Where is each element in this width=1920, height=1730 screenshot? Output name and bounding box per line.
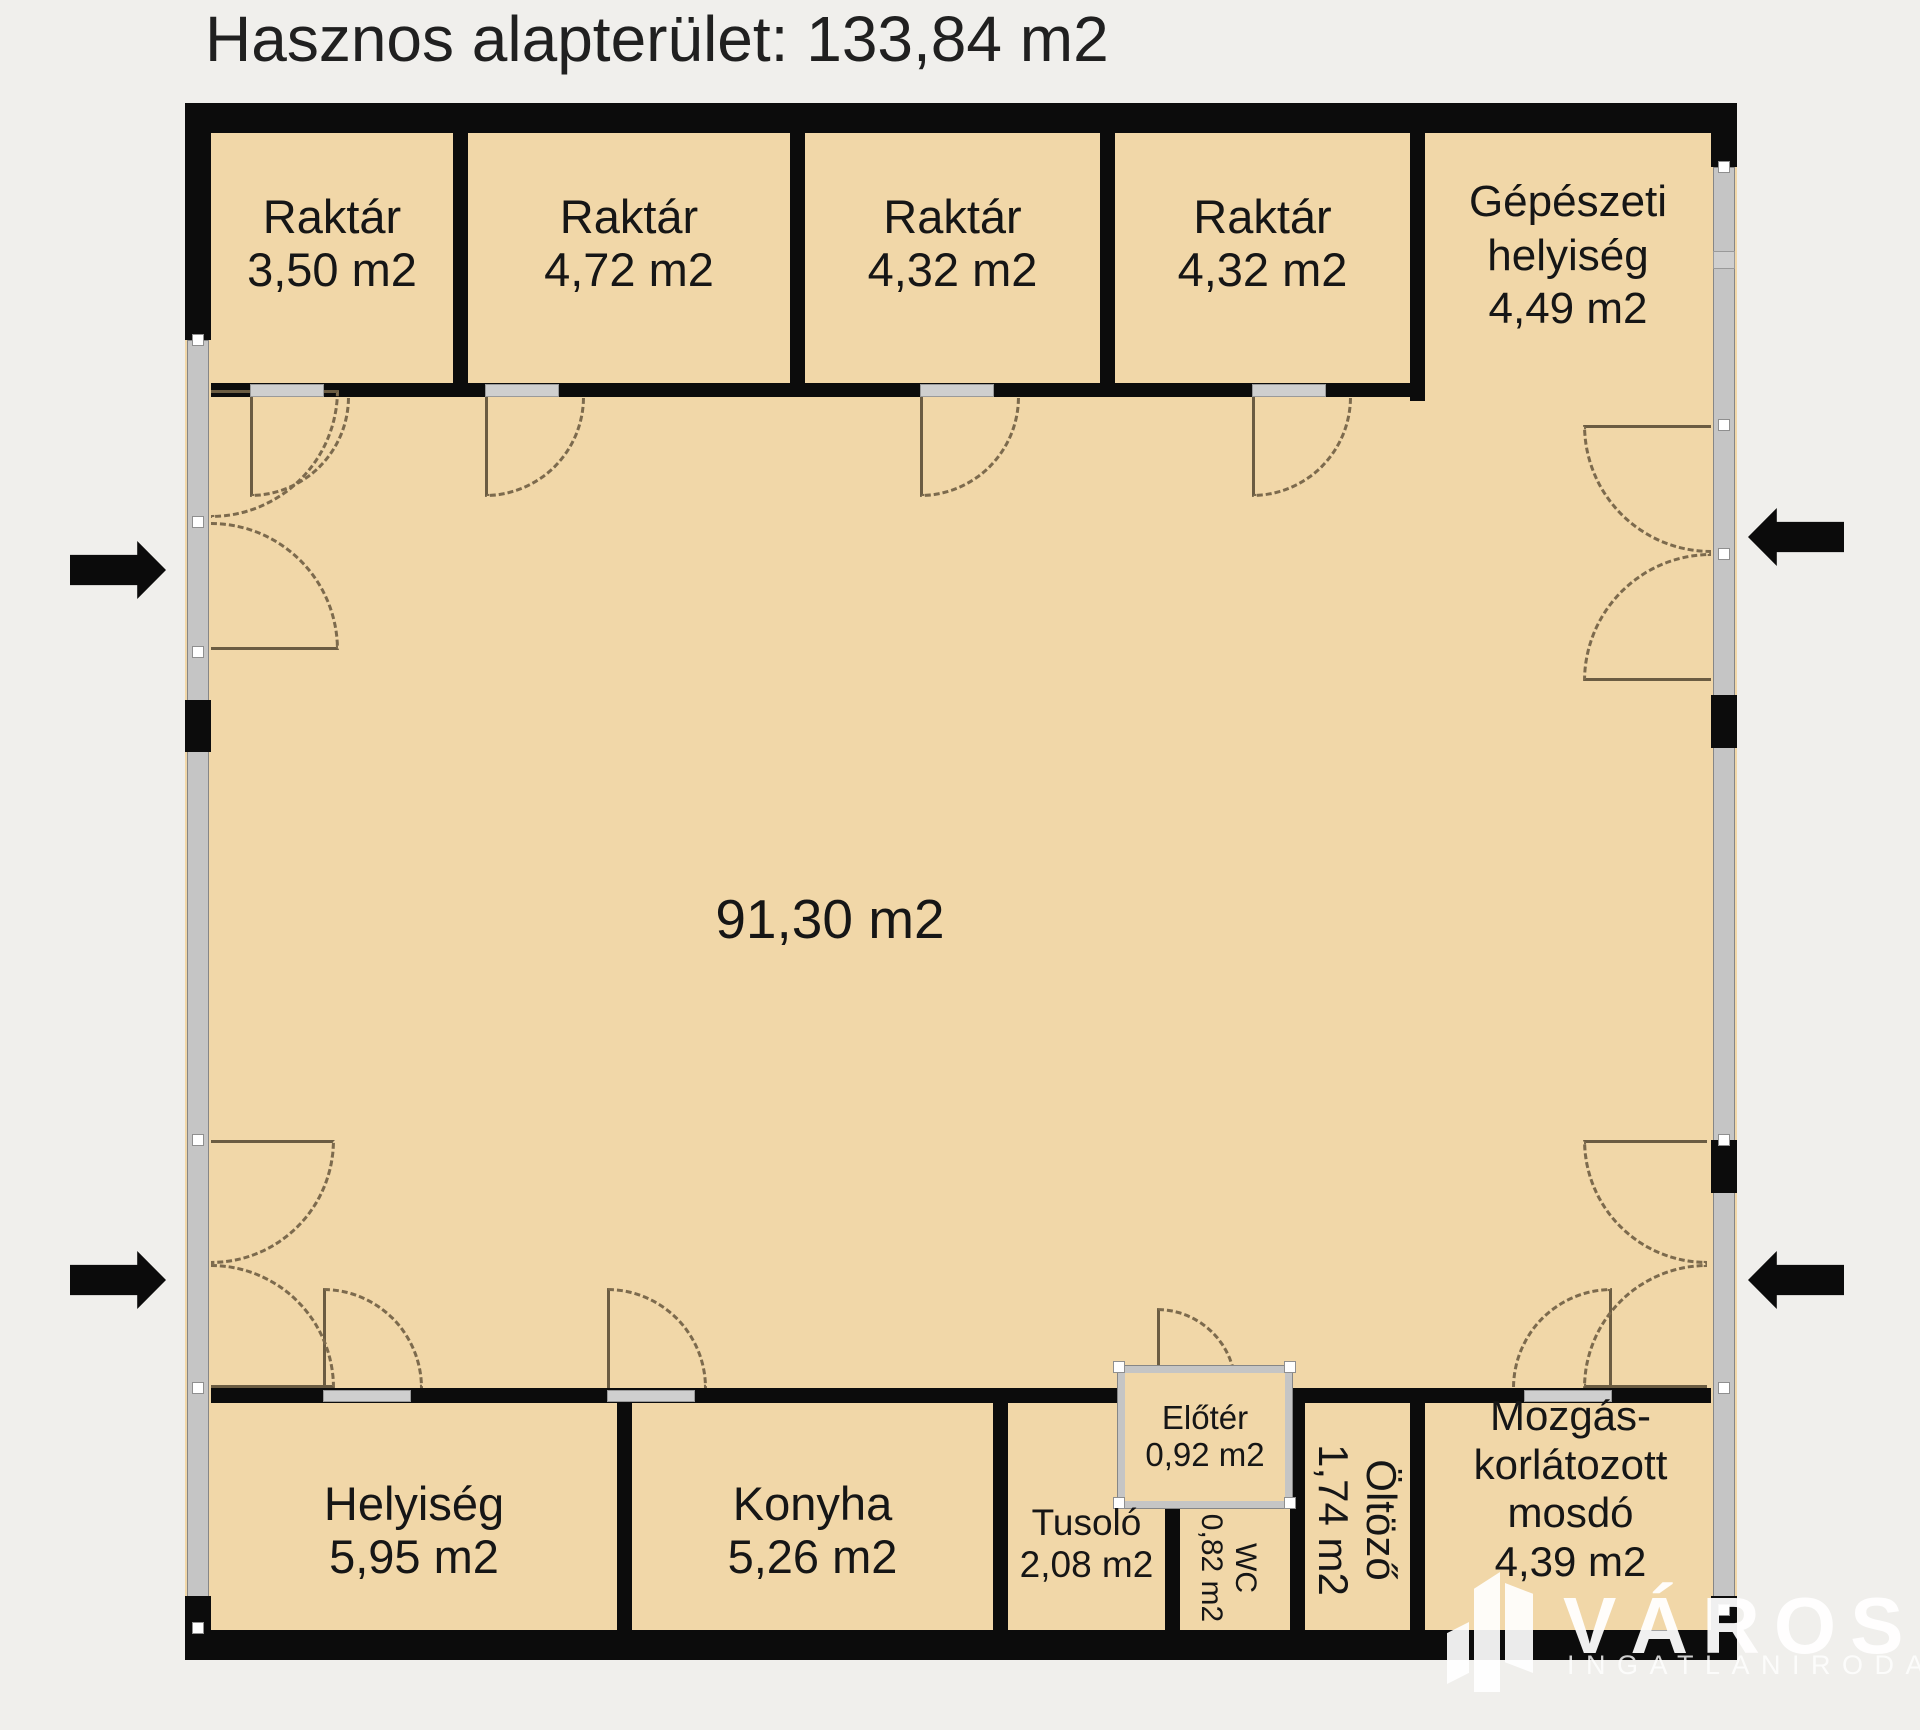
wall-left-pillar [185, 700, 211, 752]
room-eloter: Előtér 0,92 m2 [1118, 1366, 1292, 1508]
room-area: 2,08 m2 [1008, 1544, 1165, 1586]
wall-connector [192, 1134, 204, 1146]
room-area: 91,30 m2 [560, 888, 1100, 950]
wall-right-pillar-1 [1711, 695, 1737, 748]
room-name: Öltöző [1357, 1459, 1405, 1580]
wall-connector [1718, 419, 1730, 431]
room-area: 4,72 m2 [468, 243, 790, 296]
room-helyiseg: Helyiség 5,95 m2 [211, 1477, 617, 1583]
entrance-arrow-right-lower [1748, 1251, 1844, 1309]
wall-right-top [1711, 103, 1737, 167]
wall-connector [1284, 1497, 1296, 1509]
glass-wall-right [1713, 167, 1735, 1632]
floor-plan: Hasznos alapterület: 133,84 m2 [0, 0, 1920, 1730]
wall-tusolo-wc [1165, 1500, 1180, 1633]
wall-oltozo-mosdo [1410, 1403, 1425, 1633]
wall-connector [1718, 548, 1730, 560]
room-gepeszeti: Gépészeti helyiség 4,49 m2 [1425, 175, 1711, 336]
wall-connector [192, 334, 204, 346]
wall-konyha-tusolo [993, 1403, 1008, 1633]
watermark-subtitle: INGATLANIRODA [1567, 1650, 1920, 1681]
room-hall: 91,30 m2 [560, 888, 1100, 950]
room-name: WC [1228, 1543, 1263, 1593]
room-area: 4,32 m2 [1115, 243, 1410, 296]
wall-helyiseg-konyha [617, 1403, 632, 1633]
room-raktar-1: Raktár 3,50 m2 [211, 190, 453, 296]
wall-raktar2-raktar3 [790, 133, 805, 383]
room-name: helyiség [1425, 229, 1711, 283]
entrance-arrow-left-lower [70, 1251, 166, 1309]
room-name: Raktár [468, 190, 790, 243]
room-area: 5,26 m2 [632, 1530, 993, 1583]
wall-connector [1284, 1361, 1296, 1373]
room-name: Gépészeti [1425, 175, 1711, 229]
wall-connector [1718, 1134, 1730, 1146]
room-area: 4,49 m2 [1425, 282, 1711, 336]
wall-connector [1718, 1382, 1730, 1394]
wall-storerooms-bottom [211, 383, 1425, 397]
room-name: Raktár [805, 190, 1100, 243]
room-raktar-2: Raktár 4,72 m2 [468, 190, 790, 296]
room-tusolo: Tusoló 2,08 m2 [1008, 1502, 1165, 1586]
wall-connector [192, 1622, 204, 1634]
room-name: mosdó [1430, 1489, 1711, 1538]
wall-notch [1713, 251, 1735, 269]
door-opening-konyha [607, 1390, 695, 1402]
room-name: Mozgás- [1430, 1392, 1711, 1441]
room-area: 4,32 m2 [805, 243, 1100, 296]
room-area: 3,50 m2 [211, 243, 453, 296]
door-opening-helyiseg [323, 1390, 411, 1402]
room-wc: WC 0,82 m2 [1183, 1493, 1273, 1643]
room-name: Raktár [211, 190, 453, 243]
door-opening-raktar1 [250, 384, 324, 397]
room-area: 5,95 m2 [211, 1530, 617, 1583]
room-raktar-3: Raktár 4,32 m2 [805, 190, 1100, 296]
wall-left-top [185, 103, 211, 340]
wall-connector [1113, 1361, 1125, 1373]
wall-connector [192, 516, 204, 528]
room-oltozo: Öltöző 1,74 m2 [1302, 1410, 1412, 1630]
room-area: 0,82 m2 [1194, 1514, 1229, 1622]
room-raktar-4: Raktár 4,32 m2 [1115, 190, 1410, 296]
page-title: Hasznos alapterület: 133,84 m2 [205, 2, 1109, 76]
door-opening-raktar4 [1252, 384, 1326, 397]
wall-connector [192, 1382, 204, 1394]
room-name: Előtér [1162, 1400, 1248, 1437]
wall-right-pillar-2 [1711, 1140, 1737, 1193]
room-name: Konyha [632, 1477, 993, 1530]
room-area: 0,92 m2 [1145, 1437, 1264, 1474]
door-opening-raktar3 [920, 384, 994, 397]
wall-raktar4-gepeszeti [1410, 133, 1425, 401]
wall-connector [1718, 161, 1730, 173]
glass-wall-left [187, 340, 209, 1632]
wall-bottom [185, 1630, 1737, 1660]
room-mosdo: Mozgás- korlátozott mosdó 4,39 m2 [1430, 1392, 1711, 1587]
room-name: Raktár [1115, 190, 1410, 243]
wall-top [185, 103, 1737, 133]
room-name: Helyiség [211, 1477, 617, 1530]
door-opening-raktar2 [485, 384, 559, 397]
room-name: korlátozott [1430, 1441, 1711, 1490]
wall-raktar1-raktar2 [453, 133, 468, 383]
entrance-arrow-left-upper [70, 541, 166, 599]
room-konyha: Konyha 5,26 m2 [632, 1477, 993, 1583]
wall-connector [192, 646, 204, 658]
entrance-arrow-right-upper [1748, 508, 1844, 566]
room-name: Tusoló [1008, 1502, 1165, 1544]
room-area: 1,74 m2 [1309, 1444, 1357, 1596]
wall-raktar3-raktar4 [1100, 133, 1115, 383]
